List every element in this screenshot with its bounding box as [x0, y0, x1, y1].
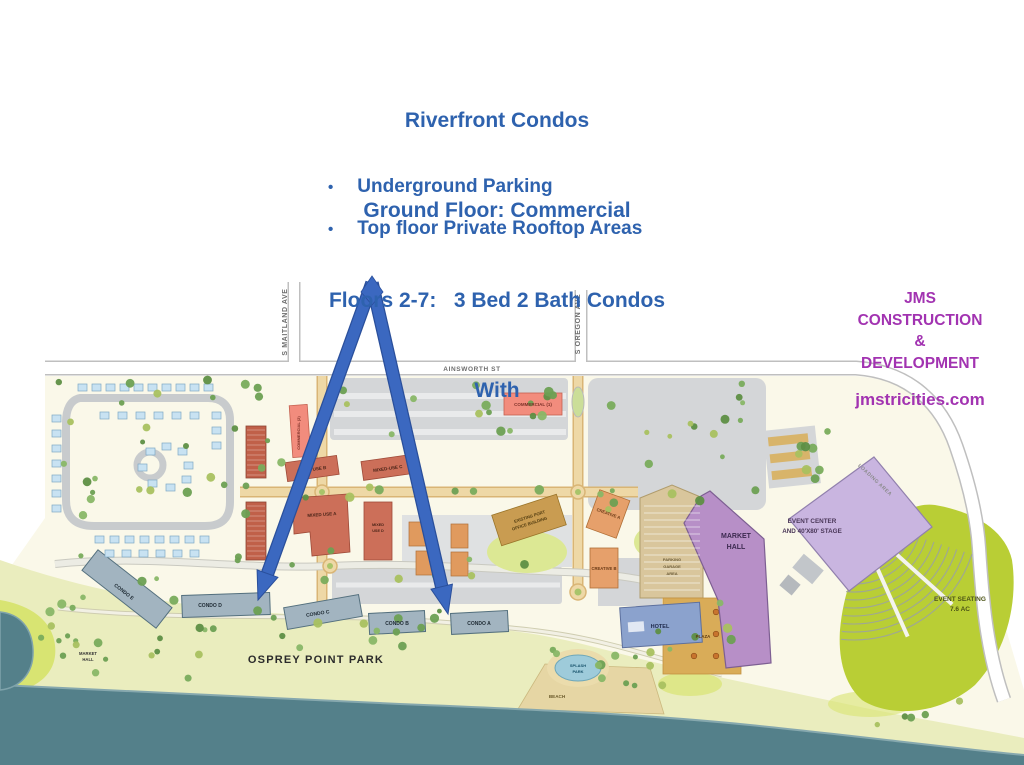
house — [110, 536, 119, 543]
tree — [126, 379, 135, 388]
tree — [795, 450, 803, 458]
tree — [437, 609, 442, 614]
label-parking-garage-line1: PARKING — [663, 557, 681, 562]
tree — [169, 596, 178, 605]
label-parking-garage-line3: AREA — [666, 571, 677, 576]
tree — [374, 628, 381, 635]
tree — [467, 557, 473, 563]
tree — [610, 498, 619, 507]
house — [173, 550, 182, 557]
tree — [320, 576, 328, 584]
tree — [119, 400, 125, 406]
tree — [598, 674, 606, 682]
tree — [45, 607, 54, 616]
tree — [210, 625, 217, 632]
label-creative-b: CREATIVE B — [591, 566, 616, 571]
house — [184, 462, 193, 469]
tree — [470, 488, 477, 495]
tree — [183, 443, 189, 449]
house — [52, 460, 61, 467]
tree — [801, 442, 810, 451]
tree — [83, 477, 92, 486]
tree — [360, 619, 368, 627]
tree — [137, 577, 146, 586]
walkup-building — [451, 524, 468, 548]
title-line-3: Floors 2-7: 3 Bed 2 Bath Condos — [237, 286, 757, 316]
tree — [902, 713, 908, 719]
house — [92, 384, 101, 391]
tree — [723, 624, 732, 633]
tree — [633, 655, 638, 660]
tree — [646, 662, 654, 670]
tree — [92, 669, 99, 676]
label-market-hall-small-line2: HALL — [82, 657, 94, 662]
roundabout-green — [575, 489, 581, 495]
hotel-detail — [628, 621, 645, 632]
house — [146, 448, 155, 455]
tree — [154, 576, 159, 581]
label-event-center-line2: AND 40'X80' STAGE — [782, 528, 842, 535]
tree — [67, 419, 74, 426]
house — [52, 445, 61, 452]
roundabout-green — [327, 563, 333, 569]
tree — [417, 624, 425, 632]
plaza-table — [713, 653, 719, 659]
tree — [313, 618, 322, 627]
house — [125, 536, 134, 543]
tree — [922, 711, 929, 718]
tree — [185, 675, 192, 682]
label-plaza: PLAZA — [696, 634, 711, 639]
brand-line-development: DEVELOPMENT — [818, 353, 1022, 375]
tree — [70, 605, 76, 611]
tree — [157, 635, 163, 641]
house — [212, 427, 221, 434]
label-market-hall-small-line1: MARKET — [79, 651, 97, 656]
tree — [668, 489, 677, 498]
label-market-hall-line1: MARKET — [721, 533, 752, 540]
tree — [65, 633, 70, 638]
tree — [80, 595, 86, 601]
bullet-text-rooftop-areas: Top floor Private Rooftop Areas — [357, 218, 642, 240]
tree — [153, 390, 161, 398]
label-event-seating-line2: 7.6 AC — [950, 606, 970, 613]
house — [105, 550, 114, 557]
house — [148, 480, 157, 487]
roundabout-green — [319, 489, 325, 495]
label-market-hall-line2: HALL — [727, 544, 746, 551]
label-splash-park-line2: PARK — [572, 669, 583, 674]
house — [172, 412, 181, 419]
tree — [235, 557, 241, 563]
tree — [815, 466, 824, 475]
tree — [375, 485, 384, 494]
tree — [717, 600, 724, 607]
tree — [136, 486, 143, 493]
plaza-table — [713, 631, 719, 637]
tree — [48, 622, 55, 629]
house — [162, 384, 171, 391]
title-line-4: With — [237, 376, 757, 406]
tree — [289, 562, 295, 568]
tree — [56, 638, 61, 643]
house — [52, 415, 61, 422]
house — [140, 536, 149, 543]
tree — [210, 395, 216, 401]
label-event-center-line1: EVENT CENTER — [788, 518, 837, 525]
house — [148, 384, 157, 391]
tree — [646, 648, 654, 656]
house — [182, 476, 191, 483]
tree — [38, 635, 44, 641]
tree — [956, 698, 963, 705]
bullet-text-underground-parking: Underground Parking — [357, 176, 552, 198]
house — [166, 484, 175, 491]
tree — [667, 647, 672, 652]
house — [190, 384, 199, 391]
tree — [366, 484, 374, 492]
tree — [143, 424, 151, 432]
house — [204, 384, 213, 391]
bullet-dot: • — [328, 178, 333, 197]
house — [52, 490, 61, 497]
tree — [183, 488, 192, 497]
tree — [103, 657, 108, 662]
house — [52, 475, 61, 482]
house — [156, 550, 165, 557]
roundabout-green — [575, 589, 582, 596]
tree — [57, 599, 66, 608]
tree — [140, 440, 145, 445]
tree — [241, 509, 250, 518]
slide-title-block: Riverfront Condos Ground Floor: Commerci… — [237, 46, 757, 466]
tree — [611, 652, 619, 660]
house — [190, 550, 199, 557]
walkup-building — [451, 552, 468, 576]
house — [78, 384, 87, 391]
tree — [61, 461, 67, 467]
brand-website-link[interactable]: jmstricities.com — [818, 389, 1022, 411]
tree — [468, 572, 475, 579]
tree — [73, 641, 80, 648]
label-condo-a: CONDO A — [467, 621, 491, 627]
tree — [221, 482, 228, 489]
tree — [90, 490, 95, 495]
house — [136, 412, 145, 419]
tree — [452, 488, 459, 495]
tree — [610, 488, 615, 493]
brand-line-jms: JMS — [818, 288, 1022, 310]
tree — [195, 651, 203, 659]
title-line-1: Riverfront Condos — [237, 106, 757, 136]
tree — [520, 560, 529, 569]
tree — [595, 662, 602, 669]
house — [185, 536, 194, 543]
tree — [802, 465, 811, 474]
tree — [727, 635, 736, 644]
label-beach: BEACH — [549, 694, 566, 699]
tree — [154, 649, 160, 655]
tree — [430, 614, 439, 623]
tree — [60, 653, 66, 659]
house — [100, 412, 109, 419]
house — [122, 550, 131, 557]
bullet-dot: • — [328, 220, 333, 239]
label-mixed-use-d-line1: MIXED — [372, 523, 384, 527]
tree — [146, 486, 154, 494]
house — [139, 550, 148, 557]
house — [190, 412, 199, 419]
house — [118, 412, 127, 419]
slide-canvas: Riverfront Condos Ground Floor: Commerci… — [0, 0, 1024, 765]
tree — [535, 485, 545, 495]
label-splash-park-line1: SPLASH — [570, 663, 586, 668]
splash-park-pond — [555, 655, 601, 681]
tree — [811, 474, 820, 483]
tree — [279, 633, 285, 639]
tree — [206, 473, 215, 482]
tree — [56, 379, 62, 385]
house — [176, 384, 185, 391]
house — [178, 448, 187, 455]
label-event-seating-line1: EVENT SEATING — [934, 596, 986, 603]
tree — [149, 652, 155, 658]
tree — [751, 486, 759, 494]
brand-block: JMS CONSTRUCTION & DEVELOPMENT jmstricit… — [818, 288, 1022, 411]
brand-line-construction: CONSTRUCTION — [818, 310, 1022, 332]
tree — [327, 547, 334, 554]
tree — [393, 628, 400, 635]
house — [212, 412, 221, 419]
tree — [79, 511, 87, 519]
label-mixed-use-d-line2: USE D — [372, 529, 384, 533]
label-condo-b: CONDO B — [385, 621, 409, 627]
tree — [597, 491, 603, 497]
tree — [94, 638, 103, 647]
house — [162, 443, 171, 450]
tree — [632, 683, 638, 689]
brand-line-amp: & — [818, 331, 1022, 353]
tree — [398, 642, 407, 651]
tree — [243, 483, 250, 490]
tree — [395, 575, 403, 583]
plaza-table — [713, 609, 719, 615]
house — [95, 536, 104, 543]
label-condo-d: CONDO D — [198, 603, 222, 609]
bullet-item-parking: • Underground Parking — [328, 176, 553, 198]
tree — [623, 680, 629, 686]
tree — [303, 494, 309, 500]
tree — [658, 681, 666, 689]
tree — [296, 644, 303, 651]
tree — [78, 553, 83, 558]
plaza-table — [691, 653, 697, 659]
house — [52, 505, 61, 512]
tree — [875, 722, 880, 727]
house — [106, 384, 115, 391]
house — [134, 384, 143, 391]
house — [154, 412, 163, 419]
tree — [553, 650, 560, 657]
house — [212, 442, 221, 449]
tree — [271, 615, 277, 621]
tree — [369, 636, 378, 645]
tree — [253, 606, 262, 615]
house — [52, 430, 61, 437]
house — [155, 536, 164, 543]
tree — [203, 376, 212, 385]
tree — [695, 496, 704, 505]
tree — [345, 493, 354, 502]
house — [138, 464, 147, 471]
tree — [196, 624, 204, 632]
label-osprey-point-park: OSPREY POINT PARK — [248, 654, 384, 666]
label-parking-garage-line2: GARAGE — [663, 564, 681, 569]
tree — [92, 476, 98, 482]
tree — [824, 428, 831, 435]
bullet-item-rooftop: • Top floor Private Rooftop Areas — [328, 218, 642, 240]
tree — [87, 495, 95, 503]
tree — [907, 714, 915, 722]
house — [200, 536, 209, 543]
house — [170, 536, 179, 543]
park-green-blob-mid — [658, 672, 722, 696]
label-hotel: HOTEL — [651, 624, 670, 630]
